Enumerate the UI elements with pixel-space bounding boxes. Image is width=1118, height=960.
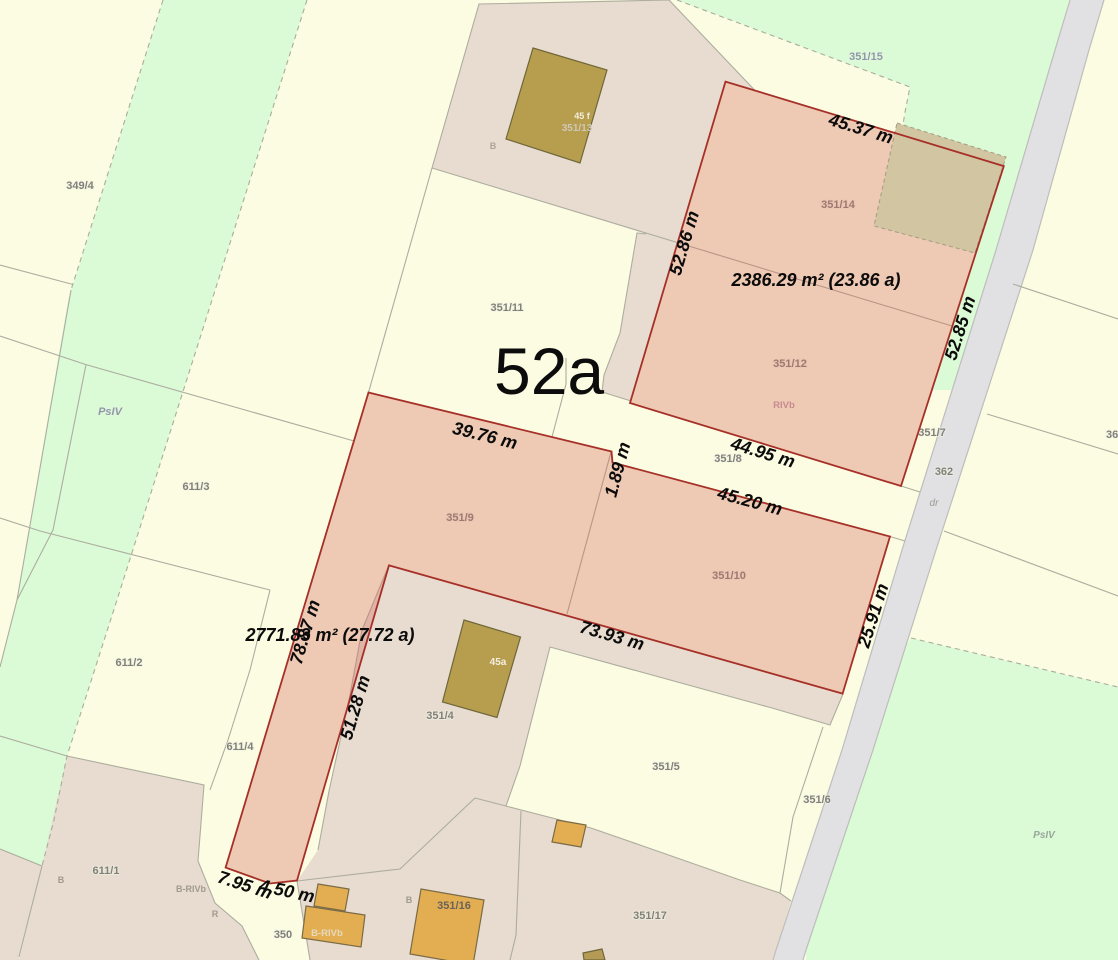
svg-text:B: B [58,875,65,885]
svg-text:2771.83 m² (27.72 a): 2771.83 m² (27.72 a) [244,625,414,645]
svg-text:B: B [406,895,413,905]
svg-text:45a: 45a [490,657,507,668]
svg-text:R: R [212,909,219,919]
svg-text:351/11: 351/11 [490,302,523,314]
svg-text:611/3: 611/3 [183,481,210,493]
svg-text:PsIV: PsIV [98,406,124,418]
svg-text:350: 350 [274,929,292,941]
svg-text:351/15: 351/15 [849,51,883,63]
svg-text:36: 36 [1106,429,1118,441]
svg-text:351/4: 351/4 [426,710,454,722]
svg-text:351/13: 351/13 [562,123,593,134]
svg-text:PsIV: PsIV [1033,830,1056,841]
svg-text:351/6: 351/6 [803,794,831,806]
svg-text:B: B [490,141,497,151]
svg-text:52a: 52a [494,334,604,408]
svg-text:611/2: 611/2 [116,657,143,669]
svg-text:45 f: 45 f [574,111,591,121]
svg-text:349/4: 349/4 [66,180,94,192]
svg-text:351/16: 351/16 [437,900,471,912]
svg-text:351/17: 351/17 [633,910,667,922]
svg-text:611/1: 611/1 [93,865,120,877]
svg-text:2386.29 m² (23.86 a): 2386.29 m² (23.86 a) [730,270,900,290]
svg-text:351/7: 351/7 [918,427,946,439]
svg-text:611/4: 611/4 [227,741,255,753]
svg-text:dr: dr [930,498,940,509]
svg-text:B-RIVb: B-RIVb [311,928,343,939]
svg-text:362: 362 [935,466,953,478]
svg-text:B-RIVb: B-RIVb [176,884,206,894]
svg-text:351/5: 351/5 [652,761,680,773]
